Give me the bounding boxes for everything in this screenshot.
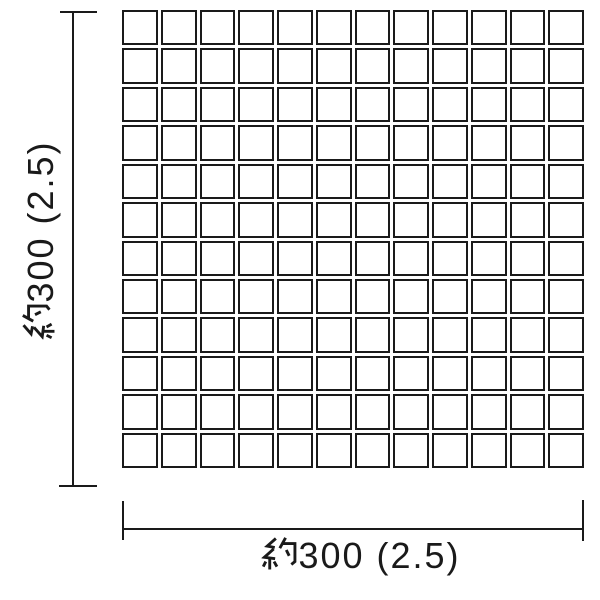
tile-cell bbox=[200, 433, 236, 468]
tile-cell bbox=[316, 356, 352, 391]
tile-cell bbox=[471, 48, 507, 83]
tile-cell bbox=[471, 317, 507, 352]
vertical-dimension-line bbox=[72, 12, 74, 486]
tile-cell bbox=[277, 202, 313, 237]
tile-cell bbox=[238, 279, 274, 314]
tile-cell bbox=[548, 356, 584, 391]
mosaic-tile-grid bbox=[122, 10, 584, 468]
tile-cell bbox=[122, 125, 158, 160]
tile-cell bbox=[238, 394, 274, 429]
tile-cell bbox=[161, 48, 197, 83]
tile-cell bbox=[432, 202, 468, 237]
tile-cell bbox=[432, 164, 468, 199]
tile-cell bbox=[161, 202, 197, 237]
tile-cell bbox=[277, 317, 313, 352]
tile-cell bbox=[238, 433, 274, 468]
tile-cell bbox=[200, 356, 236, 391]
tile-cell bbox=[355, 125, 391, 160]
tile-cell bbox=[548, 279, 584, 314]
tile-cell bbox=[122, 87, 158, 122]
tile-cell bbox=[316, 241, 352, 276]
tile-cell bbox=[122, 202, 158, 237]
tile-cell bbox=[122, 241, 158, 276]
tile-cell bbox=[200, 48, 236, 83]
tile-cell bbox=[432, 356, 468, 391]
tile-cell bbox=[510, 394, 546, 429]
tile-cell bbox=[471, 241, 507, 276]
tile-cell bbox=[355, 241, 391, 276]
tile-cell bbox=[510, 10, 546, 45]
tile-cell bbox=[200, 10, 236, 45]
tile-cell bbox=[200, 241, 236, 276]
tile-cell bbox=[238, 241, 274, 276]
tile-cell bbox=[548, 317, 584, 352]
tile-cell bbox=[393, 279, 429, 314]
tile-cell bbox=[161, 433, 197, 468]
tile-cell bbox=[355, 87, 391, 122]
tile-cell bbox=[161, 125, 197, 160]
tile-cell bbox=[471, 433, 507, 468]
tile-cell bbox=[238, 125, 274, 160]
tile-cell bbox=[200, 164, 236, 199]
tile-cell bbox=[161, 317, 197, 352]
tile-cell bbox=[277, 10, 313, 45]
tile-cell bbox=[316, 279, 352, 314]
tile-cell bbox=[277, 279, 313, 314]
tile-cell bbox=[548, 125, 584, 160]
horizontal-dimension-value: 300 (2.5) bbox=[298, 535, 460, 576]
tile-cell bbox=[161, 10, 197, 45]
tile-cell bbox=[510, 125, 546, 160]
tile-cell bbox=[122, 164, 158, 199]
tile-cell bbox=[355, 279, 391, 314]
kanji-yaku-icon bbox=[21, 304, 57, 340]
tile-cell bbox=[510, 164, 546, 199]
tile-cell bbox=[471, 87, 507, 122]
tile-cell bbox=[393, 125, 429, 160]
tile-cell bbox=[471, 356, 507, 391]
tile-cell bbox=[355, 48, 391, 83]
tile-cell bbox=[393, 241, 429, 276]
tile-cell bbox=[316, 394, 352, 429]
kanji-yaku-icon bbox=[261, 536, 297, 572]
tile-cell bbox=[510, 48, 546, 83]
tile-cell bbox=[548, 202, 584, 237]
tile-cell bbox=[471, 202, 507, 237]
tile-cell bbox=[510, 433, 546, 468]
vertical-dimension-bottom-tick bbox=[59, 485, 97, 487]
tile-cell bbox=[393, 356, 429, 391]
tile-cell bbox=[548, 87, 584, 122]
tile-cell bbox=[122, 10, 158, 45]
tile-cell bbox=[432, 241, 468, 276]
horizontal-dimension-line bbox=[123, 528, 583, 530]
tile-cell bbox=[393, 317, 429, 352]
tile-cell bbox=[316, 87, 352, 122]
tile-cell bbox=[200, 279, 236, 314]
tile-cell bbox=[548, 241, 584, 276]
tile-cell bbox=[122, 394, 158, 429]
tile-cell bbox=[548, 394, 584, 429]
tile-cell bbox=[200, 394, 236, 429]
tile-cell bbox=[548, 164, 584, 199]
tile-cell bbox=[471, 279, 507, 314]
horizontal-dimension-left-tick bbox=[122, 501, 124, 540]
tile-cell bbox=[510, 356, 546, 391]
vertical-dimension-top-tick bbox=[60, 11, 97, 13]
horizontal-dimension-right-tick bbox=[582, 500, 584, 541]
tile-cell bbox=[277, 241, 313, 276]
tile-cell bbox=[277, 356, 313, 391]
tile-cell bbox=[122, 48, 158, 83]
tile-cell bbox=[471, 164, 507, 199]
tile-cell bbox=[510, 317, 546, 352]
tile-cell bbox=[238, 202, 274, 237]
tile-cell bbox=[161, 279, 197, 314]
tile-cell bbox=[161, 356, 197, 391]
tile-cell bbox=[355, 394, 391, 429]
tile-cell bbox=[432, 87, 468, 122]
tile-cell bbox=[316, 202, 352, 237]
tile-cell bbox=[355, 356, 391, 391]
tile-cell bbox=[161, 394, 197, 429]
tile-cell bbox=[510, 87, 546, 122]
tile-cell bbox=[355, 202, 391, 237]
tile-cell bbox=[510, 202, 546, 237]
tile-cell bbox=[393, 87, 429, 122]
tile-cell bbox=[277, 164, 313, 199]
tile-cell bbox=[200, 317, 236, 352]
tile-cell bbox=[355, 317, 391, 352]
tile-cell bbox=[432, 48, 468, 83]
tile-cell bbox=[432, 433, 468, 468]
tile-cell bbox=[432, 125, 468, 160]
tile-cell bbox=[161, 87, 197, 122]
tile-cell bbox=[316, 164, 352, 199]
tile-cell bbox=[510, 279, 546, 314]
tile-cell bbox=[471, 394, 507, 429]
horizontal-dimension-label: 300 (2.5) bbox=[261, 536, 460, 574]
tile-cell bbox=[277, 48, 313, 83]
tile-cell bbox=[277, 433, 313, 468]
tile-cell bbox=[432, 279, 468, 314]
tile-cell bbox=[161, 241, 197, 276]
tile-cell bbox=[316, 10, 352, 45]
tile-cell bbox=[238, 10, 274, 45]
tile-cell bbox=[238, 164, 274, 199]
tile-cell bbox=[200, 87, 236, 122]
tile-cell bbox=[393, 394, 429, 429]
tile-cell bbox=[355, 433, 391, 468]
tile-cell bbox=[548, 48, 584, 83]
tile-cell bbox=[432, 394, 468, 429]
tile-cell bbox=[161, 164, 197, 199]
tile-cell bbox=[432, 317, 468, 352]
tile-cell bbox=[393, 10, 429, 45]
tile-cell bbox=[122, 356, 158, 391]
tile-sheet-dimension-diagram: 300 (2.5) 300 (2.5) bbox=[0, 0, 600, 600]
tile-cell bbox=[393, 202, 429, 237]
tile-cell bbox=[393, 164, 429, 199]
tile-cell bbox=[122, 433, 158, 468]
tile-cell bbox=[548, 10, 584, 45]
tile-cell bbox=[200, 202, 236, 237]
tile-cell bbox=[393, 433, 429, 468]
tile-cell bbox=[316, 48, 352, 83]
tile-cell bbox=[200, 125, 236, 160]
tile-cell bbox=[471, 10, 507, 45]
tile-cell bbox=[277, 394, 313, 429]
vertical-dimension-value: 300 (2.5) bbox=[20, 140, 61, 302]
tile-cell bbox=[316, 317, 352, 352]
tile-cell bbox=[277, 87, 313, 122]
tile-cell bbox=[355, 10, 391, 45]
tile-cell bbox=[316, 125, 352, 160]
tile-cell bbox=[432, 10, 468, 45]
vertical-dimension-label: 300 (2.5) bbox=[21, 140, 59, 339]
tile-cell bbox=[238, 87, 274, 122]
tile-cell bbox=[238, 317, 274, 352]
tile-cell bbox=[471, 125, 507, 160]
tile-cell bbox=[122, 279, 158, 314]
tile-cell bbox=[355, 164, 391, 199]
tile-cell bbox=[277, 125, 313, 160]
tile-cell bbox=[238, 356, 274, 391]
tile-cell bbox=[316, 433, 352, 468]
tile-cell bbox=[393, 48, 429, 83]
tile-cell bbox=[510, 241, 546, 276]
tile-cell bbox=[548, 433, 584, 468]
tile-cell bbox=[122, 317, 158, 352]
tile-cell bbox=[238, 48, 274, 83]
